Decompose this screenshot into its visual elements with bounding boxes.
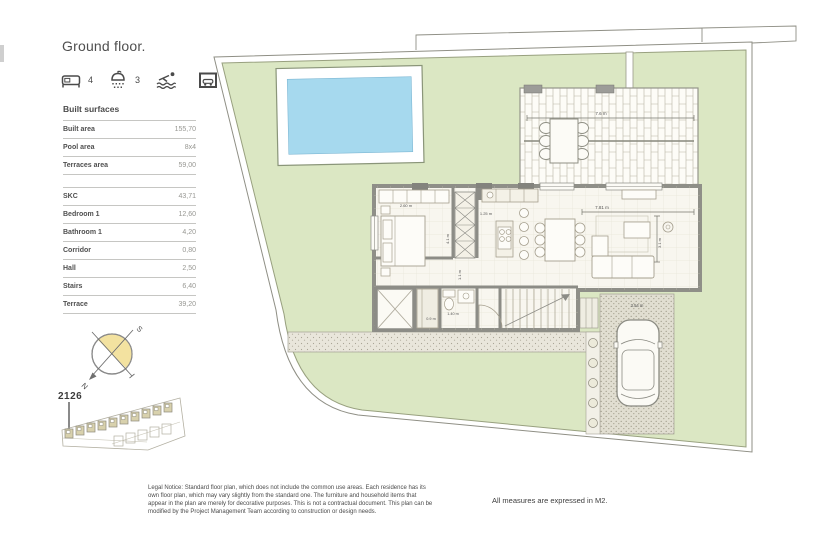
- compass-south-label: S: [135, 324, 145, 334]
- table-row: Bathroom 1 4,20: [63, 223, 196, 241]
- pool-icon: [154, 71, 178, 89]
- shower-icon: [107, 70, 129, 89]
- site-houses-row2: [114, 424, 171, 446]
- dining-table: [545, 219, 575, 261]
- table-row: Corridor 0,80: [63, 241, 196, 259]
- dim-bath-width: 1.40 m: [447, 312, 459, 316]
- garden-wall: [626, 52, 633, 90]
- dim-stairs-depth: 4.1 m: [445, 233, 450, 244]
- table-row: Pool area 8x4: [63, 138, 196, 156]
- nightstand: [381, 268, 390, 276]
- plot-number-label: 2126: [58, 391, 82, 402]
- car-top-view: [614, 320, 662, 406]
- cistern: [443, 290, 455, 297]
- dim-bath-depth: 0.9 m: [426, 317, 436, 321]
- table-row: Terrace 39,20: [63, 295, 196, 314]
- site-houses-row: [65, 403, 172, 438]
- porch: [376, 288, 414, 330]
- table-row: Hall 2,50: [63, 259, 196, 277]
- table-group-gap: [63, 175, 196, 187]
- sofa: [592, 256, 654, 278]
- surfaces-table-header: Built surfaces: [63, 104, 119, 114]
- compass-rose: S N: [78, 318, 148, 390]
- outdoor-dining-set: [540, 119, 589, 163]
- table-row: SKC 43,71: [63, 187, 196, 205]
- amenities-row: 4 3: [60, 70, 218, 89]
- table-row: Terraces area 59,00: [63, 156, 196, 175]
- washbasin: [458, 290, 474, 303]
- swimming-pool: [276, 65, 424, 165]
- dim-terrace-width: 7.6 m: [595, 111, 607, 116]
- nightstand: [381, 206, 390, 214]
- table-row: Stairs 6,40: [63, 277, 196, 295]
- bathrooms-count: 3: [135, 75, 140, 85]
- planting-strip: [586, 332, 600, 434]
- dim-kitchen-island: 1.25 m: [480, 211, 493, 216]
- bed-icon: [60, 71, 82, 89]
- toilet: [445, 298, 454, 310]
- garage-icon: [198, 71, 218, 89]
- table-row: Bedroom 1 12,60: [63, 205, 196, 223]
- neighbor-outline-step1: [416, 28, 702, 50]
- sofa-chaise: [592, 236, 608, 256]
- coffee-table: [624, 222, 650, 238]
- bedroom-window: [371, 216, 378, 250]
- dim-bedroom-width: 2.60 m: [400, 203, 413, 208]
- terrace-pillar: [524, 85, 542, 93]
- stairs-upper-flight: [455, 192, 475, 258]
- dim-living-depth: 3.1 m: [657, 237, 662, 248]
- entry-steps: [580, 298, 598, 328]
- legal-notice: Legal Notice: Standard floor plan, which…: [148, 485, 435, 517]
- site-key-map: 2126: [52, 388, 197, 466]
- surfaces-table: Built area 155,70 Pool area 8x4 Terraces…: [63, 120, 196, 314]
- pillow: [383, 243, 392, 262]
- measures-note: All measures are expressed in M2.: [492, 496, 607, 505]
- terrace: 7.6 m: [520, 85, 698, 186]
- table-row: Built area 155,70: [63, 120, 196, 138]
- dim-living-width: 7.81 m: [595, 205, 609, 210]
- neighbor-outline-step2: [702, 26, 796, 43]
- pillow: [383, 220, 392, 239]
- pool-water: [287, 77, 413, 155]
- dim-driveway-width: 3.54 m: [631, 303, 644, 308]
- sink: [487, 192, 493, 198]
- page-title: Ground floor.: [62, 38, 146, 54]
- dining-set: [535, 219, 585, 261]
- tv-bench: [622, 190, 656, 199]
- dim-corridor-width: 1.1 m: [457, 269, 462, 280]
- closet-skc: [417, 289, 438, 328]
- wardrobe: [379, 190, 449, 203]
- terrace-pillar: [596, 85, 614, 93]
- walkway: [288, 332, 602, 352]
- bedrooms-count: 4: [88, 75, 93, 85]
